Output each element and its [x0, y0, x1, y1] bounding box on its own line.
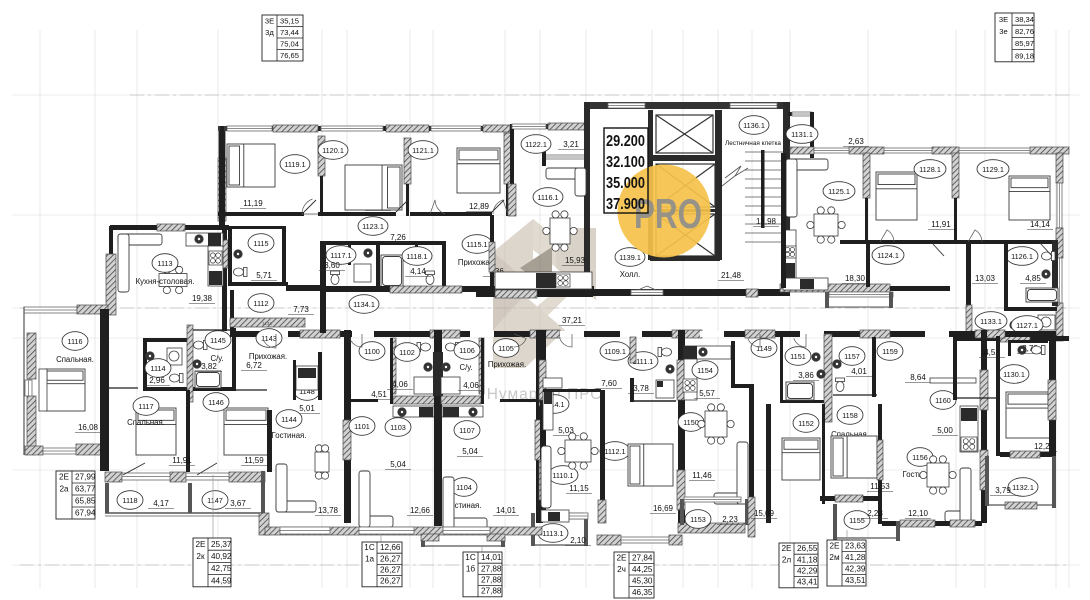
svg-text:3Е: 3Е [265, 16, 274, 25]
svg-text:1160: 1160 [935, 396, 951, 405]
svg-text:27,99: 27,99 [75, 473, 96, 482]
svg-text:37.900: 37.900 [606, 196, 645, 213]
svg-text:25,37: 25,37 [211, 540, 232, 549]
svg-text:73,44: 73,44 [280, 28, 299, 37]
svg-text:26,27: 26,27 [380, 577, 401, 586]
svg-text:2Е: 2Е [616, 553, 627, 562]
svg-text:1145: 1145 [210, 336, 226, 345]
svg-text:6,72: 6,72 [246, 361, 262, 370]
svg-text:14,01: 14,01 [481, 553, 502, 562]
svg-text:14,01: 14,01 [496, 506, 517, 515]
svg-text:45,30: 45,30 [632, 576, 653, 585]
svg-text:Гостиная.: Гостиная. [272, 431, 307, 440]
svg-text:5,71: 5,71 [256, 271, 272, 280]
svg-text:82,76: 82,76 [1015, 27, 1034, 36]
svg-text:1133.1: 1133.1 [980, 317, 1002, 326]
svg-text:1144: 1144 [281, 415, 297, 424]
svg-text:42,75: 42,75 [211, 564, 232, 573]
svg-text:1123.1: 1123.1 [362, 222, 384, 231]
svg-text:44,59: 44,59 [211, 576, 232, 585]
svg-text:2,23: 2,23 [722, 515, 738, 524]
svg-text:2к: 2к [196, 552, 205, 561]
svg-text:1117.1: 1117.1 [330, 251, 351, 260]
svg-text:16,08: 16,08 [78, 423, 99, 432]
svg-text:1155: 1155 [849, 516, 865, 525]
svg-text:26,55: 26,55 [797, 544, 818, 553]
svg-text:3,82: 3,82 [201, 362, 217, 371]
svg-text:3,79: 3,79 [995, 486, 1011, 495]
svg-text:1101: 1101 [354, 422, 370, 431]
svg-text:35.000: 35.000 [606, 175, 645, 192]
svg-text:1С: 1С [465, 553, 476, 562]
svg-text:1а: 1а [365, 554, 375, 563]
svg-text:32.100: 32.100 [606, 154, 645, 171]
svg-text:16,69: 16,69 [653, 504, 674, 513]
svg-text:4,06: 4,06 [463, 381, 479, 390]
svg-text:4,01: 4,01 [851, 367, 867, 376]
svg-text:38,34: 38,34 [1015, 15, 1034, 24]
svg-text:12,66: 12,66 [380, 543, 401, 552]
svg-text:5,57: 5,57 [699, 389, 715, 398]
svg-text:12,66: 12,66 [410, 506, 431, 515]
svg-text:11,15: 11,15 [569, 484, 589, 493]
svg-text:1118.1: 1118.1 [406, 252, 427, 261]
svg-text:1131.1: 1131.1 [791, 130, 813, 139]
svg-text:19,38: 19,38 [192, 294, 213, 303]
svg-text:1134.1: 1134.1 [353, 300, 375, 309]
svg-text:12,10: 12,10 [908, 509, 929, 518]
svg-text:2Е: 2Е [195, 540, 206, 549]
svg-text:13,98: 13,98 [756, 217, 777, 226]
svg-text:1124.1: 1124.1 [877, 251, 899, 260]
svg-text:85,97: 85,97 [1015, 39, 1034, 48]
svg-text:1С: 1С [364, 543, 375, 552]
svg-text:Прихожая.: Прихожая. [488, 360, 526, 369]
svg-text:2,23: 2,23 [867, 509, 883, 518]
svg-text:1125.1: 1125.1 [828, 187, 850, 196]
svg-text:5,00: 5,00 [937, 426, 953, 435]
svg-text:7,26: 7,26 [390, 233, 406, 242]
svg-text:5,04: 5,04 [462, 447, 478, 456]
svg-text:1107: 1107 [459, 426, 475, 435]
svg-text:42,39: 42,39 [845, 564, 866, 573]
svg-text:12,89: 12,89 [469, 202, 490, 211]
svg-text:1102: 1102 [399, 348, 415, 357]
svg-text:26,27: 26,27 [380, 565, 401, 574]
svg-text:15,09: 15,09 [754, 509, 775, 518]
svg-text:40,92: 40,92 [211, 552, 232, 561]
svg-text:1121.1: 1121.1 [412, 146, 434, 155]
svg-text:Спальная.: Спальная. [56, 355, 94, 364]
svg-text:3е: 3е [999, 27, 1007, 36]
svg-text:11,19: 11,19 [243, 199, 263, 208]
svg-text:14,14: 14,14 [1030, 220, 1051, 229]
svg-text:5,01: 5,01 [299, 404, 315, 413]
svg-text:1146: 1146 [208, 398, 224, 407]
svg-text:7,60: 7,60 [601, 379, 617, 388]
svg-text:1126.1: 1126.1 [1011, 252, 1033, 261]
svg-text:1151: 1151 [790, 352, 806, 361]
svg-text:44,25: 44,25 [632, 565, 653, 574]
svg-text:1129.1: 1129.1 [982, 165, 1004, 174]
svg-text:4,17: 4,17 [153, 499, 169, 508]
svg-text:1100: 1100 [364, 347, 380, 356]
svg-text:11,91: 11,91 [172, 456, 192, 465]
svg-text:1127.1: 1127.1 [1016, 321, 1038, 330]
svg-text:2,63: 2,63 [848, 137, 864, 146]
svg-text:13,78: 13,78 [318, 506, 339, 515]
svg-text:43,51: 43,51 [845, 576, 866, 585]
svg-text:23,63: 23,63 [845, 541, 866, 550]
svg-text:75,04: 75,04 [280, 39, 299, 48]
svg-text:1149: 1149 [756, 344, 772, 353]
svg-text:Холл.: Холл. [620, 270, 641, 279]
svg-text:2Е: 2Е [59, 473, 70, 482]
svg-text:3Е: 3Е [999, 15, 1008, 24]
svg-text:1б: 1б [466, 564, 476, 573]
svg-text:67,94: 67,94 [75, 509, 96, 518]
svg-text:1128.1: 1128.1 [919, 165, 941, 174]
svg-text:4,06: 4,06 [392, 380, 408, 389]
svg-text:76,65: 76,65 [280, 51, 299, 60]
svg-text:С/у.: С/у. [459, 363, 472, 372]
svg-text:41,18: 41,18 [797, 555, 818, 564]
svg-text:2,96: 2,96 [149, 376, 165, 385]
svg-text:1122.1: 1122.1 [525, 140, 547, 149]
svg-text:Прихожая.: Прихожая. [249, 352, 287, 361]
svg-text:35,15: 35,15 [280, 16, 299, 25]
svg-text:1139.1: 1139.1 [619, 253, 641, 262]
svg-text:3,78: 3,78 [633, 384, 649, 393]
svg-text:11,46: 11,46 [692, 471, 712, 480]
svg-text:1158: 1158 [842, 411, 858, 420]
svg-text:1113: 1113 [157, 259, 172, 268]
svg-text:2ч: 2ч [617, 565, 626, 574]
svg-text:63,77: 63,77 [75, 485, 96, 494]
svg-text:27,88: 27,88 [481, 564, 502, 573]
svg-text:1103: 1103 [390, 423, 406, 432]
svg-text:1120.1: 1120.1 [322, 146, 344, 155]
svg-text:1104: 1104 [456, 483, 472, 492]
svg-text:1112.1: 1112.1 [604, 447, 625, 456]
svg-text:2,10: 2,10 [570, 536, 586, 545]
svg-text:43,41: 43,41 [797, 578, 818, 587]
svg-text:18,30: 18,30 [845, 274, 866, 283]
svg-text:3,86: 3,86 [798, 371, 814, 380]
svg-text:1105: 1105 [498, 344, 514, 353]
svg-text:1117: 1117 [138, 402, 153, 411]
svg-text:1106: 1106 [459, 346, 475, 355]
svg-text:3,60: 3,60 [324, 261, 340, 270]
svg-text:15,93: 15,93 [565, 256, 586, 265]
svg-text:65,85: 65,85 [75, 497, 96, 506]
svg-text:1109.1: 1109.1 [604, 347, 626, 356]
svg-text:1110.1: 1110.1 [552, 471, 573, 480]
svg-text:41,28: 41,28 [845, 553, 866, 562]
svg-text:1112: 1112 [253, 299, 268, 308]
svg-text:27,88: 27,88 [481, 575, 502, 584]
svg-text:2Е: 2Е [829, 541, 840, 550]
svg-text:27,88: 27,88 [481, 587, 502, 596]
svg-text:1136.1: 1136.1 [743, 121, 765, 130]
svg-text:21,48: 21,48 [721, 271, 742, 280]
svg-text:1156: 1156 [912, 453, 928, 462]
svg-text:4,85: 4,85 [1025, 274, 1041, 283]
svg-text:2л: 2л [782, 555, 792, 564]
svg-text:1115.1: 1115.1 [466, 240, 487, 249]
svg-text:1134: 1134 [262, 321, 272, 326]
svg-text:1150: 1150 [683, 418, 699, 427]
svg-text:1130.1: 1130.1 [1003, 370, 1025, 379]
svg-text:4,51: 4,51 [371, 390, 387, 399]
svg-text:1119.1: 1119.1 [284, 160, 305, 169]
svg-text:1159: 1159 [882, 347, 898, 356]
svg-text:5,04: 5,04 [390, 460, 406, 469]
svg-text:1152: 1152 [798, 419, 814, 428]
svg-text:3,67: 3,67 [230, 499, 246, 508]
svg-text:29.200: 29.200 [606, 133, 645, 150]
svg-text:Лестничная клетка: Лестничная клетка [725, 140, 781, 147]
svg-text:11,91: 11,91 [931, 220, 951, 229]
svg-text:1154: 1154 [697, 366, 713, 375]
svg-text:7,73: 7,73 [293, 305, 309, 314]
svg-text:Кухня-столовая.: Кухня-столовая. [136, 277, 195, 286]
svg-text:42,29: 42,29 [797, 566, 818, 575]
svg-text:1153: 1153 [690, 515, 706, 524]
svg-text:1113.1: 1113.1 [542, 529, 563, 538]
svg-text:1147: 1147 [207, 496, 223, 505]
svg-text:2а: 2а [59, 485, 69, 494]
svg-text:1114: 1114 [150, 364, 165, 373]
svg-text:8,64: 8,64 [910, 373, 926, 382]
svg-text:2м: 2м [829, 553, 840, 562]
svg-text:1116.1: 1116.1 [537, 193, 558, 202]
svg-text:1118: 1118 [122, 496, 137, 505]
svg-text:27,84: 27,84 [632, 553, 653, 562]
svg-text:11,59: 11,59 [244, 456, 264, 465]
svg-text:1157: 1157 [844, 352, 860, 361]
svg-text:13,03: 13,03 [975, 274, 996, 283]
svg-text:1115: 1115 [253, 239, 268, 248]
svg-text:4,14: 4,14 [410, 267, 426, 276]
svg-text:3,21: 3,21 [563, 140, 579, 149]
svg-text:3д: 3д [265, 28, 274, 37]
svg-text:46,35: 46,35 [632, 588, 653, 597]
svg-text:1132.1: 1132.1 [1012, 483, 1034, 492]
svg-text:1116: 1116 [67, 337, 82, 346]
svg-text:1143: 1143 [261, 334, 277, 343]
svg-text:37,21: 37,21 [562, 316, 583, 325]
svg-text:2Е: 2Е [781, 544, 792, 553]
svg-text:89,18: 89,18 [1015, 51, 1034, 60]
svg-text:26,27: 26,27 [380, 554, 401, 563]
svg-text:Спальная.: Спальная. [127, 418, 165, 427]
